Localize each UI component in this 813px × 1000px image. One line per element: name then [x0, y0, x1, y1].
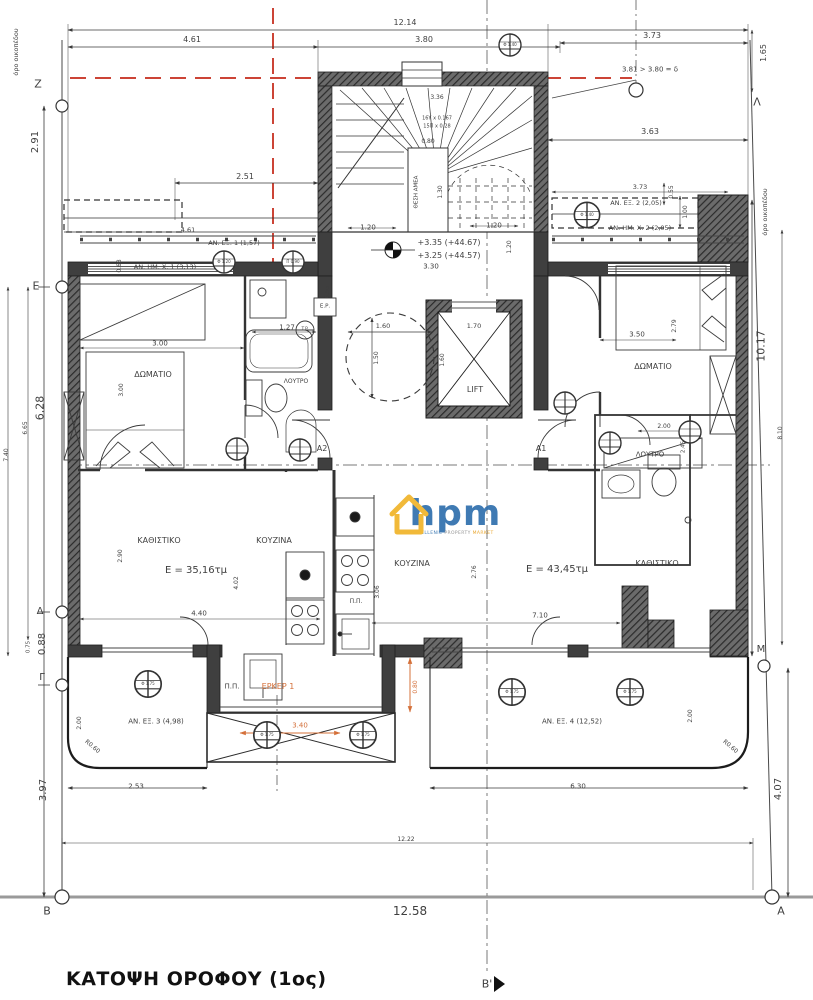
hpm-logo: hpm HELLENIC PROPERTY MARKET: [388, 498, 523, 550]
page-title: ΚΑΤΟΨΗ ΟΡΟΦΟΥ (1ος): [66, 968, 327, 990]
balconies: [68, 657, 748, 768]
level-marker: [371, 242, 415, 258]
lift-shaft: [426, 297, 522, 418]
floor-plan-canvas: hpm HELLENIC PROPERTY MARKET 12.144.613.…: [0, 0, 813, 1000]
balcony-windows: [102, 648, 710, 712]
an-ex-1-outline: [64, 200, 318, 232]
stairwell: [332, 62, 534, 232]
setback-leader: [552, 80, 636, 98]
turning-circle: [346, 313, 434, 401]
house-icon: [388, 492, 430, 536]
veranda-railings: [80, 236, 744, 243]
corner-pier: [698, 195, 748, 262]
door-arcs: [100, 276, 650, 645]
section-arrow-icon: [494, 976, 505, 992]
